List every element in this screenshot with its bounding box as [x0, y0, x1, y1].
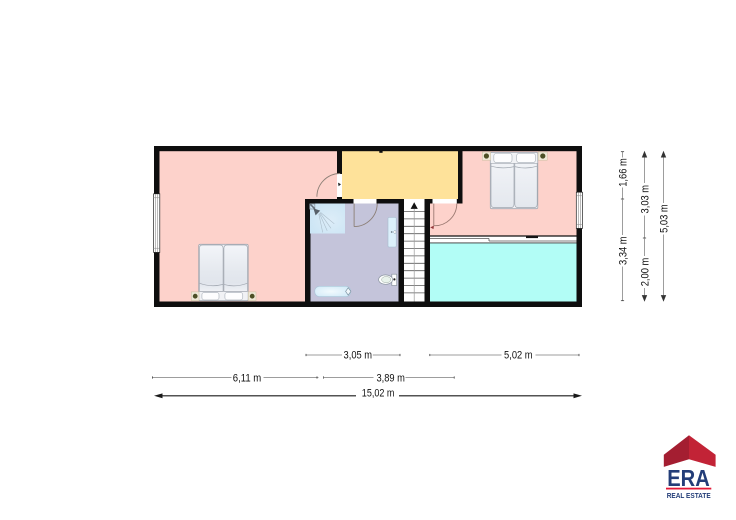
- svg-text:1,66 m: 1,66 m: [617, 158, 629, 187]
- svg-text:ERA: ERA: [667, 465, 710, 491]
- svg-text:5,02 m: 5,02 m: [504, 349, 533, 361]
- svg-text:REAL ESTATE: REAL ESTATE: [667, 491, 711, 500]
- svg-text:5,03 m: 5,03 m: [658, 204, 670, 233]
- svg-text:3,05 m: 3,05 m: [344, 349, 373, 361]
- svg-text:3,89 m: 3,89 m: [376, 373, 405, 385]
- svg-text:3,34 m: 3,34 m: [617, 236, 629, 265]
- svg-text:2,00 m: 2,00 m: [639, 258, 651, 287]
- svg-text:15,02 m: 15,02 m: [362, 388, 395, 400]
- svg-text:3,03 m: 3,03 m: [639, 185, 651, 214]
- svg-text:6,11 m: 6,11 m: [233, 373, 262, 385]
